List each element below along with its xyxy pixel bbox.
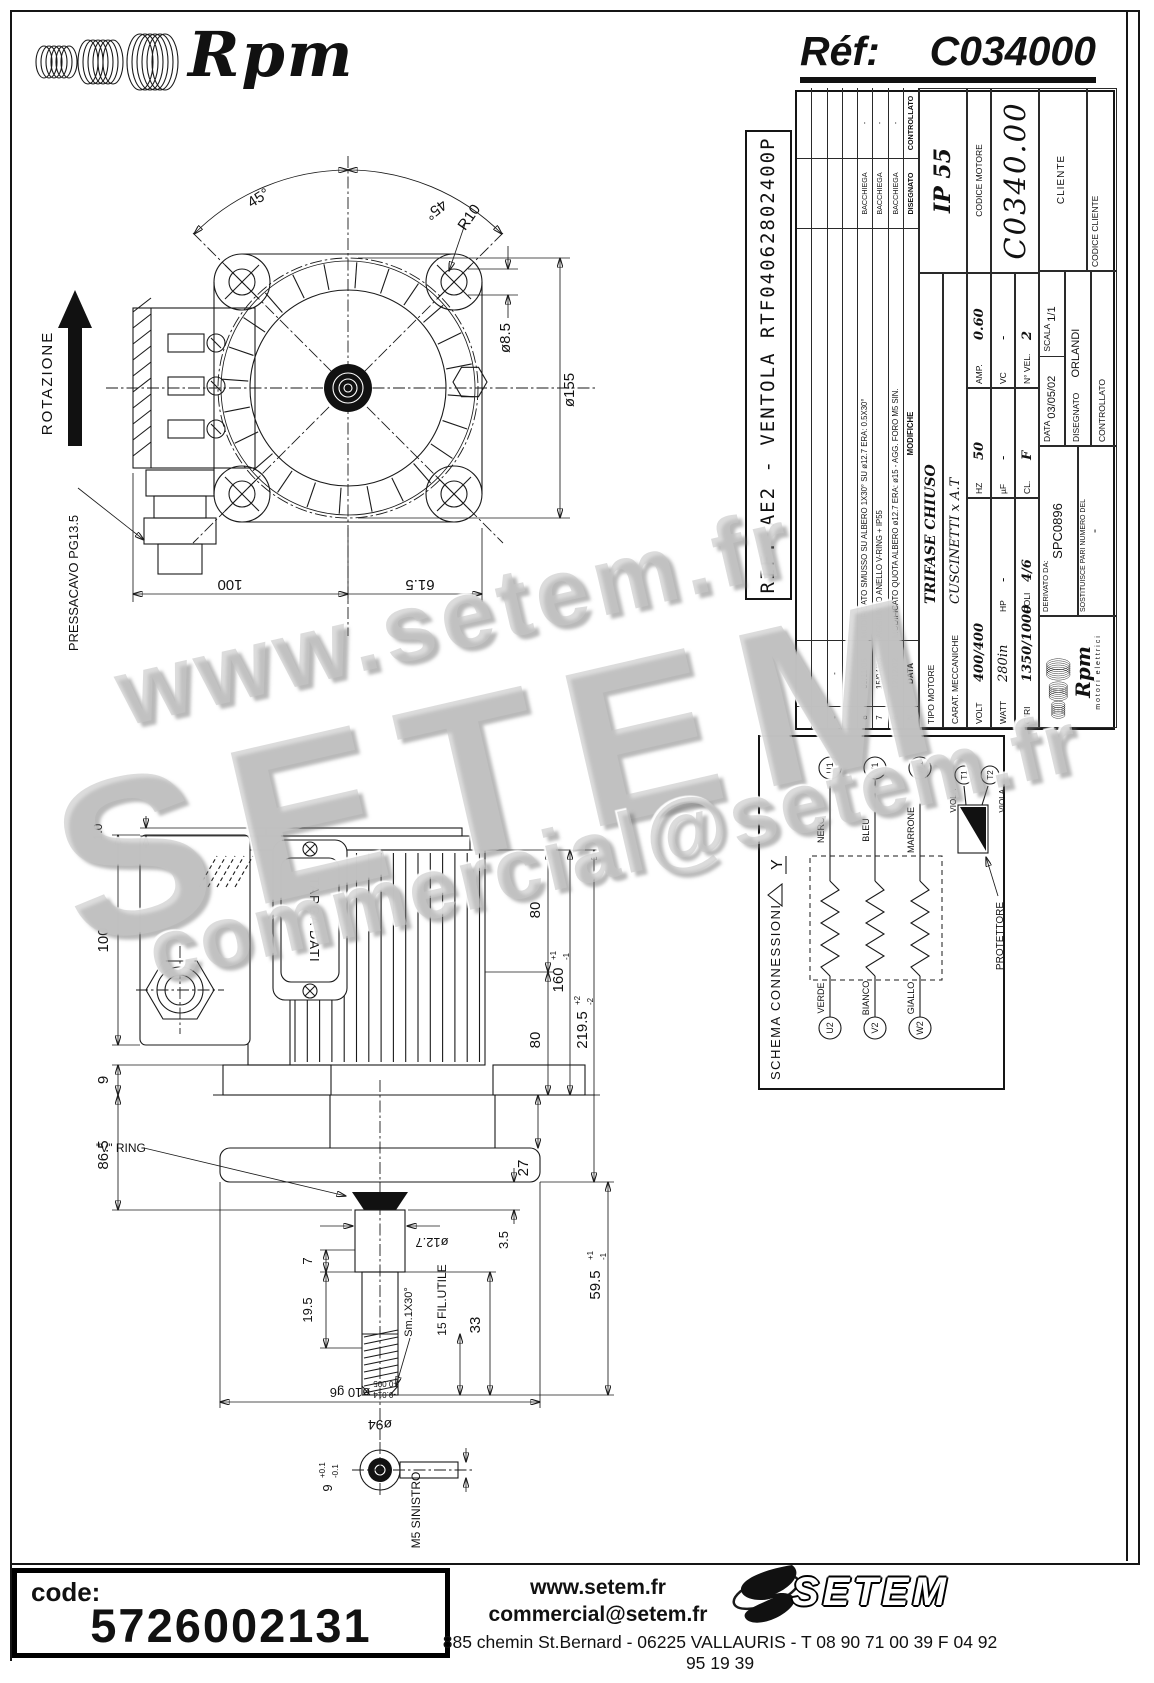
dim-155: ø155	[561, 373, 578, 407]
m5-sinistro-label: M5 SINISTRO	[409, 1472, 423, 1549]
cliente-cell: CLIENTE	[1039, 88, 1087, 271]
hz-cell: HZ 50	[967, 388, 991, 498]
angle-arc-right	[348, 170, 502, 234]
wye-icon: Y	[769, 859, 786, 870]
rpm-logo-icon	[30, 14, 200, 104]
dim-160: 160 +1 -1	[549, 950, 571, 992]
dim-9-tol: 9 +0.1 -0.1	[318, 1462, 340, 1492]
svg-text:V2: V2	[870, 1022, 880, 1033]
amp-cell: AMP. 0.60	[967, 273, 991, 388]
giri-cell: GIRI 1350/1000 POLI 4/6	[1015, 498, 1039, 728]
svg-text:-1: -1	[599, 1252, 608, 1260]
nvel-cell: N° VEL. 2	[1015, 273, 1039, 388]
dim-80-bottom: 80	[527, 1032, 544, 1049]
targa-dati-label: TARGA DATI	[307, 877, 322, 962]
dim-smusso: Sm.1X30°	[403, 1287, 415, 1337]
dim-10g6: ø10 g6 -0.005 -0.014	[330, 1379, 396, 1400]
svg-text:U2: U2	[825, 1022, 835, 1034]
dim-27: 27	[515, 1160, 532, 1177]
dim-15-fil: 15 FIL.UTILE	[435, 1264, 449, 1335]
ref-label: Réf:	[800, 28, 880, 75]
dim-7: 7	[300, 1257, 315, 1264]
rpm-logo-cell: Rpm motori elettrici	[1039, 616, 1117, 728]
volt-cell: VOLT 400/400	[967, 498, 991, 728]
angle-arc-left	[194, 170, 348, 234]
pressacavo-label: PRESSACAVO PG13.5	[66, 515, 81, 651]
rpm-logo-text: Rpm	[188, 18, 354, 91]
dim-3-5: 3.5	[496, 1231, 511, 1249]
svg-text:T1: T1	[960, 770, 969, 780]
svg-text:BLEU: BLEU	[861, 818, 871, 842]
svg-text:-0.1: -0.1	[331, 1464, 340, 1478]
protettore-assembly: T1 T2 VIOLA VIOLA PROTETTORE	[949, 766, 1007, 970]
side-view-drawing: TARGA DATI 1.0 100 9 86.5 80 80 160 +1 -…	[80, 740, 700, 1562]
dim-45-left: 45°	[244, 185, 272, 211]
terminal-screws	[168, 334, 225, 438]
data-scala-cell: DATA 03/05/02 SCALA 1/1	[1039, 271, 1065, 446]
codice-cliente-cell: CODICE CLIENTE	[1087, 88, 1117, 271]
carat-row: CARAT. MECCANICHE CUSCINETTI x A.T	[943, 273, 967, 728]
dim-r10: R10	[454, 201, 484, 233]
v-ring-label: "V" RING	[96, 1141, 146, 1155]
email-text: commercial@setem.fr	[448, 1601, 748, 1628]
schema-connessioni-box: SCHEMA CONNESSIONI Y U2 U1 VERDE NERO V2	[758, 735, 1005, 1090]
svg-text:W1: W1	[915, 761, 925, 775]
svg-text:-2: -2	[586, 997, 595, 1005]
dim-33: 33	[467, 1317, 484, 1334]
front-view-drawing: ROTAZIONE 45° 45° R10 ø8.5 ø155 100 61.5…	[18, 128, 658, 673]
svg-text:+0.1: +0.1	[318, 1462, 327, 1478]
foot-right	[493, 1065, 585, 1095]
dim-61-5: 61.5	[405, 576, 434, 593]
svg-text:NERO: NERO	[816, 817, 826, 843]
svg-text:BIANCO: BIANCO	[861, 981, 871, 1016]
modification-table: -- -- 809/11/05MODIFICATO SMUSSO SU ALBE…	[797, 88, 919, 728]
reference-header: Réf: C034000	[800, 28, 1096, 83]
dim-9: 9	[95, 1076, 112, 1084]
svg-text:-0.014: -0.014	[373, 1390, 396, 1399]
ref-value: C034000	[930, 28, 1096, 75]
dim-80-top: 80	[527, 902, 544, 919]
phase-v: V2 V1 BIANCO BLEU	[861, 757, 886, 1039]
svg-text:+2: +2	[573, 995, 582, 1005]
disegnato-cell: DISEGNATO ORLANDI	[1065, 271, 1091, 446]
vc-cell: VC -	[991, 273, 1015, 388]
svg-text:219.5: 219.5	[574, 1011, 591, 1049]
v-ring	[352, 1192, 408, 1210]
dim-8-5: ø8.5	[497, 323, 514, 353]
dim-219-5: 219.5 +2 -2	[573, 995, 595, 1048]
controllato-cell: CONTROLLATO	[1091, 271, 1117, 446]
dim-100-side: 100	[95, 927, 112, 952]
dim-94: ø94	[368, 1417, 392, 1433]
sostituisce-cell: SOSTITUISCE PARI NUMERO DEL -	[1078, 446, 1117, 616]
svg-text:GIALLO: GIALLO	[906, 982, 916, 1015]
terminal-box-hatch	[133, 298, 151, 456]
mod-header-row: NDATAMODIFICHEDISEGNATOCONTROLLATO	[904, 88, 919, 728]
dim-12-7: ø12.7	[415, 1235, 448, 1250]
cl-cell: CL. F	[1015, 388, 1039, 498]
rotazione-label: ROTAZIONE	[39, 331, 56, 435]
title-block: -- -- 809/11/05MODIFICATO SMUSSO SU ALBE…	[795, 90, 1115, 730]
svg-text:-0.005: -0.005	[373, 1379, 396, 1388]
foot-left	[223, 1065, 331, 1095]
setem-logo-text: SETEM	[792, 1570, 950, 1615]
protettore-label: PROTETTORE	[995, 902, 1006, 970]
tipo-motore-row: TIPO MOTORE TRIFASE CHIUSO	[919, 273, 943, 728]
dim-19-5: 19.5	[300, 1297, 315, 1322]
contact-block: www.setem.fr commercial@setem.fr	[448, 1574, 748, 1629]
derivato-cell: DERIVATO DA: SPC0896	[1039, 446, 1078, 616]
svg-text:U1: U1	[825, 762, 835, 774]
svg-text:+1: +1	[549, 950, 558, 960]
svg-text:+1: +1	[586, 1250, 595, 1260]
sheet-border-inner	[1126, 10, 1128, 1561]
codice-motore-cell: C0340.00	[991, 88, 1039, 273]
dim-45-right: 45°	[422, 196, 450, 223]
svg-text:9: 9	[320, 1484, 335, 1491]
watt-cell: WATT 280in HP -	[991, 498, 1015, 728]
code-box: code: 5726002131	[12, 1568, 450, 1658]
mod-row-8: 809/11/05MODIFICATO SMUSSO SU ALBERO 1X3…	[858, 88, 873, 728]
cable-gland	[144, 470, 216, 574]
mod-row-6: 612/12/02MODIFICATO QUOTA ALBERO ø12.7 E…	[889, 88, 904, 728]
phase-w: W2 W1 GIALLO MARRONE	[906, 757, 931, 1039]
svg-text:-1: -1	[562, 952, 571, 960]
viola-label-1: VIOLA	[949, 788, 958, 812]
dim-59-5: 59.5 +1 -1	[586, 1250, 608, 1299]
svg-text:W2: W2	[915, 1021, 925, 1035]
svg-text:160: 160	[550, 967, 567, 992]
ip-cell: IP 55	[919, 88, 967, 273]
svg-text:MARRONE: MARRONE	[906, 807, 916, 853]
rif-box: RIF. AE2 - VENTOLA RTF04062802400P	[745, 130, 792, 600]
mod-row-7: 715/04/03AGGIUNTO ANELLO V-RING + IP55BA…	[873, 88, 888, 728]
site-text: www.setem.fr	[448, 1574, 748, 1601]
svg-text:T2: T2	[986, 770, 995, 780]
codice-motore-label-cell: CODICE MOTORE	[967, 88, 991, 273]
svg-text:ø10 g6: ø10 g6	[330, 1385, 370, 1400]
viola-label-2: VIOLA	[998, 788, 1007, 812]
cap-lip	[266, 828, 462, 836]
svg-text:VERDE: VERDE	[816, 982, 826, 1013]
uf-cell: µF -	[991, 388, 1015, 498]
phase-u: U2 U1 VERDE NERO	[816, 757, 841, 1039]
svg-text:V1: V1	[870, 762, 880, 773]
dim-100: 100	[217, 576, 242, 593]
rif-text: RIF. AE2 - VENTOLA RTF04062802400P	[745, 130, 792, 600]
address-line: 885 chemin St.Bernard - 06225 VALLAURIS …	[440, 1632, 1000, 1674]
shaft-hub	[324, 364, 372, 412]
dim-1-0: 1.0	[91, 823, 105, 840]
svg-text:59.5: 59.5	[587, 1270, 604, 1299]
rotation-arrow-icon	[58, 290, 92, 446]
schema-title: SCHEMA CONNESSIONI	[768, 903, 783, 1080]
